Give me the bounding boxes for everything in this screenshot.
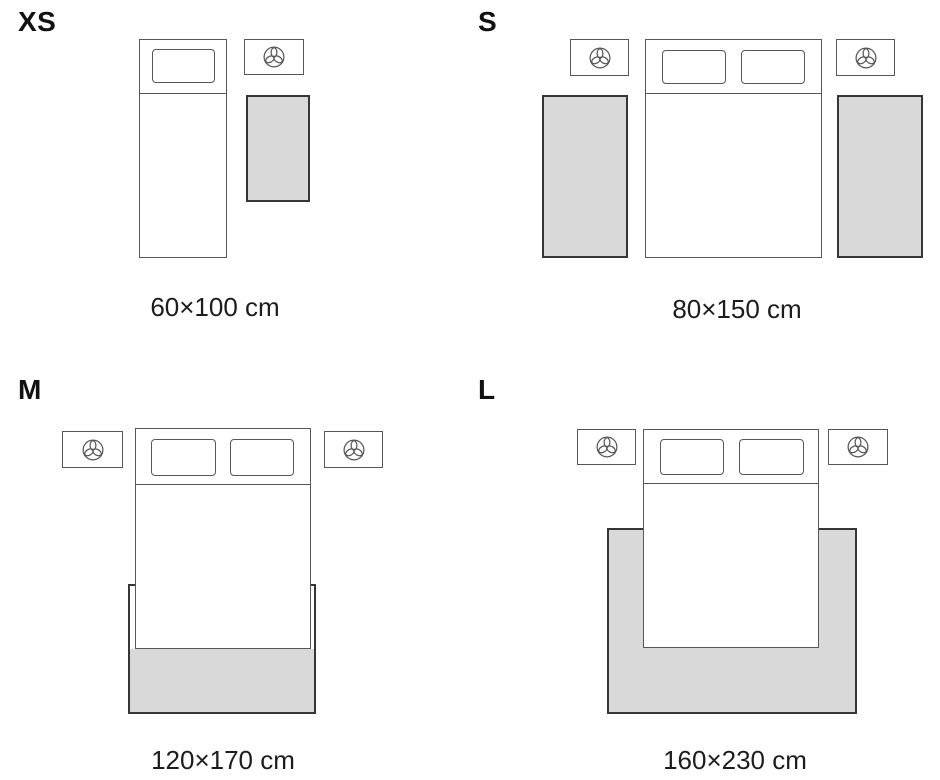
pillow-right bbox=[230, 439, 294, 476]
lamp-icon bbox=[339, 435, 369, 465]
pillow bbox=[152, 49, 215, 83]
size-caption-l: 160×230 cm bbox=[635, 746, 835, 776]
bed-headboard bbox=[644, 430, 818, 484]
double-bed-l bbox=[643, 429, 819, 648]
single-bed-xs bbox=[139, 39, 227, 258]
pillow-left bbox=[662, 50, 726, 84]
nightstand bbox=[570, 39, 629, 76]
nightstand bbox=[324, 431, 383, 468]
nightstand bbox=[62, 431, 123, 468]
size-label-l: L bbox=[478, 376, 496, 404]
lamp-icon bbox=[592, 432, 622, 462]
lamp-icon bbox=[843, 432, 873, 462]
lamp-icon bbox=[851, 43, 881, 73]
nightstand bbox=[577, 429, 636, 465]
nightstand bbox=[828, 429, 888, 465]
bed-headboard bbox=[140, 40, 226, 94]
pillow-left bbox=[151, 439, 216, 476]
bed-headboard bbox=[136, 429, 310, 485]
rug-visible-area bbox=[130, 649, 314, 712]
rug-size-guide: XS 60×100 cm S bbox=[0, 0, 940, 780]
lamp-icon bbox=[585, 43, 615, 73]
double-bed-s bbox=[645, 39, 822, 258]
nightstand bbox=[244, 39, 304, 75]
pillow-left bbox=[660, 439, 724, 475]
bed-headboard bbox=[646, 40, 821, 94]
rug-xs bbox=[246, 95, 310, 202]
nightstand bbox=[836, 39, 895, 76]
rug-s-right bbox=[837, 95, 923, 258]
lamp-icon bbox=[259, 42, 289, 72]
rug-s-left bbox=[542, 95, 628, 258]
pillow-right bbox=[741, 50, 805, 84]
pillow-right bbox=[739, 439, 804, 475]
lamp-icon bbox=[78, 435, 108, 465]
double-bed-m bbox=[135, 428, 311, 649]
